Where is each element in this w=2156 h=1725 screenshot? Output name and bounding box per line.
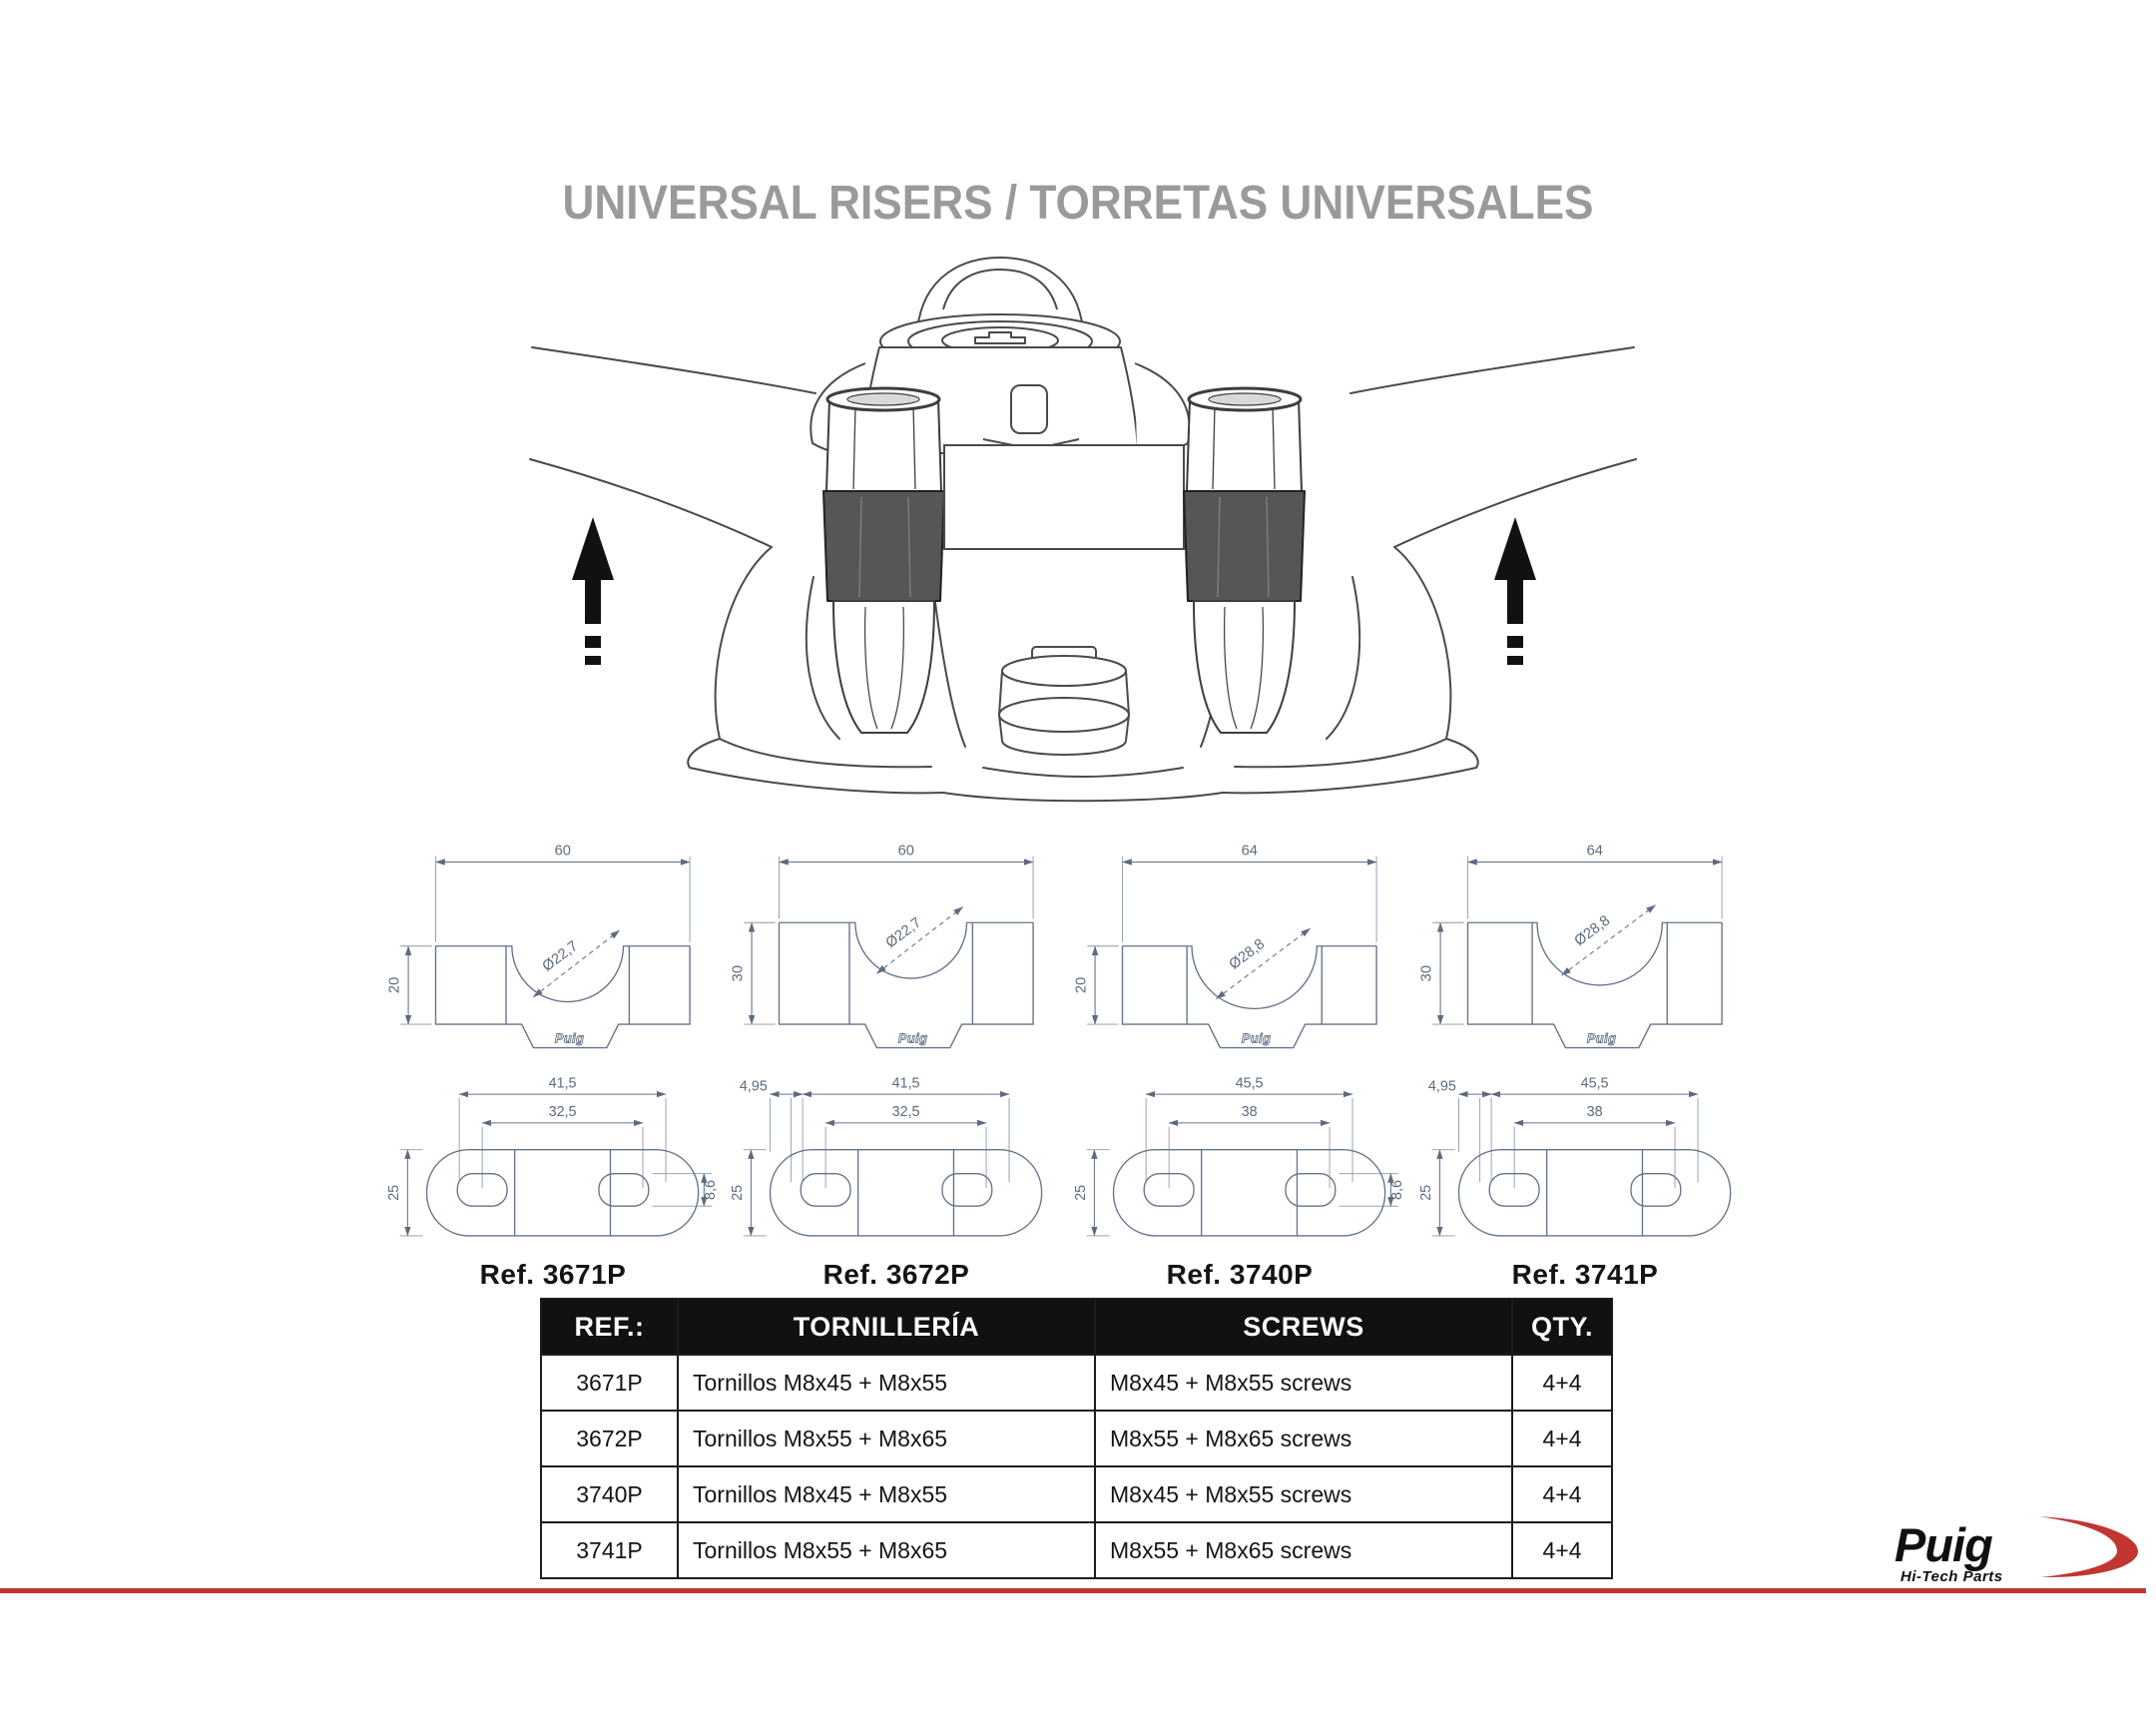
dim-inner-span: 32,5 xyxy=(549,1104,577,1120)
dim-top-width: 60 xyxy=(898,844,914,860)
drawing-set-3740p: 64 20 Ø28,8 Puig 45,5 38 25 xyxy=(1064,841,1415,1300)
dim-height: 20 xyxy=(1073,977,1089,993)
table-header-row: REF.: TORNILLERÍA SCREWS QTY. xyxy=(541,1299,1612,1355)
dim-height: 30 xyxy=(730,965,746,981)
dim-top-width: 64 xyxy=(1587,844,1603,860)
up-arrow-icon xyxy=(572,517,614,665)
dim-inner-span: 38 xyxy=(1587,1104,1603,1120)
ref-label: Ref. 3672P xyxy=(721,1259,1072,1291)
dim-outer-span: 41,5 xyxy=(892,1075,920,1091)
header-qty: QTY. xyxy=(1512,1299,1612,1355)
logo-brand-text: Puig xyxy=(1894,1518,1992,1571)
top-view-3740p: 45,5 38 25 8,6 xyxy=(1070,1075,1409,1257)
drawing-set-3672p: 60 30 Ø22,7 Puig 4,95 41,5 32,5 xyxy=(721,841,1072,1300)
puig-logo: Puig Hi-Tech Parts xyxy=(1888,1513,2144,1589)
dim-top-width: 64 xyxy=(1242,844,1258,860)
header-ref: REF.: xyxy=(541,1299,678,1355)
dim-height: 30 xyxy=(1418,965,1434,981)
dim-inner-span: 32,5 xyxy=(892,1104,920,1120)
header-tornilleria: TORNILLERÍA xyxy=(678,1299,1095,1355)
dim-edge-offset: 4,95 xyxy=(1428,1078,1456,1094)
cell-screws: M8x55 + M8x65 screws xyxy=(1095,1522,1512,1578)
dim-height: 20 xyxy=(386,977,402,993)
cell-screws: M8x55 + M8x65 screws xyxy=(1095,1411,1512,1466)
dim-plate-depth: 25 xyxy=(386,1185,402,1201)
cell-ref: 3672P xyxy=(541,1411,678,1466)
dim-plate-depth: 25 xyxy=(1073,1185,1089,1201)
cell-tornilleria: Tornillos M8x45 + M8x55 xyxy=(678,1355,1095,1411)
dim-edge-offset: 4,95 xyxy=(740,1078,768,1094)
dim-diameter: Ø22,7 xyxy=(540,938,582,975)
logo-swoosh xyxy=(2038,1516,2138,1577)
cell-tornilleria: Tornillos M8x45 + M8x55 xyxy=(678,1466,1095,1522)
left-riser xyxy=(823,388,944,733)
table-row: 3671P Tornillos M8x45 + M8x55 M8x45 + M8… xyxy=(541,1355,1612,1411)
up-arrow-icon xyxy=(1494,517,1536,665)
dim-plate-depth: 25 xyxy=(730,1185,746,1201)
footer-red-rule xyxy=(0,1588,2146,1593)
dim-diameter: Ø28,8 xyxy=(1572,912,1614,949)
dim-slot-width: 8,6 xyxy=(1389,1180,1405,1200)
dim-outer-span: 41,5 xyxy=(549,1075,577,1091)
side-view-3672p: 60 30 Ø22,7 Puig xyxy=(727,841,1066,1075)
ref-label: Ref. 3740P xyxy=(1064,1259,1415,1291)
cell-qty: 4+4 xyxy=(1512,1466,1612,1522)
cell-tornilleria: Tornillos M8x55 + M8x65 xyxy=(678,1522,1095,1578)
cell-qty: 4+4 xyxy=(1512,1522,1612,1578)
side-view-3740p: 64 20 Ø28,8 Puig xyxy=(1070,841,1409,1075)
page-title: UNIVERSAL RISERS / TORRETAS UNIVERSALES xyxy=(86,176,2069,231)
dim-outer-span: 45,5 xyxy=(1236,1075,1264,1091)
dim-inner-span: 38 xyxy=(1242,1104,1258,1120)
cell-ref: 3671P xyxy=(541,1355,678,1411)
dim-diameter: Ø28,8 xyxy=(1227,936,1269,973)
brand-stamp: Puig xyxy=(1242,1031,1272,1046)
screws-spec-table: REF.: TORNILLERÍA SCREWS QTY. 3671P Torn… xyxy=(540,1298,1613,1579)
drawing-set-3741p: 64 30 Ø28,8 Puig 4,95 45,5 38 xyxy=(1409,841,1761,1300)
cell-screws: M8x45 + M8x55 screws xyxy=(1095,1466,1512,1522)
cell-ref: 3740P xyxy=(541,1466,678,1522)
steering-nut xyxy=(999,647,1129,755)
table-row: 3741P Tornillos M8x55 + M8x65 M8x55 + M8… xyxy=(541,1522,1612,1578)
bar-clamp-plate xyxy=(944,445,1184,549)
top-view-3741p: 4,95 45,5 38 25 xyxy=(1415,1075,1755,1257)
table-row: 3740P Tornillos M8x45 + M8x55 M8x45 + M8… xyxy=(541,1466,1612,1522)
catalog-page: UNIVERSAL RISERS / TORRETAS UNIVERSALES xyxy=(0,0,2156,1725)
brand-stamp: Puig xyxy=(898,1031,928,1046)
cell-qty: 4+4 xyxy=(1512,1411,1612,1466)
cell-ref: 3741P xyxy=(541,1522,678,1578)
ref-label: Ref. 3671P xyxy=(377,1259,729,1291)
dim-top-width: 60 xyxy=(555,844,571,860)
cell-screws: M8x45 + M8x55 screws xyxy=(1095,1355,1512,1411)
dim-slot-width: 8,6 xyxy=(703,1180,719,1200)
right-riser xyxy=(1184,388,1305,733)
installation-illustration xyxy=(514,248,1652,813)
cell-qty: 4+4 xyxy=(1512,1355,1612,1411)
cell-tornilleria: Tornillos M8x55 + M8x65 xyxy=(678,1411,1095,1466)
brand-stamp: Puig xyxy=(1587,1031,1617,1046)
dim-outer-span: 45,5 xyxy=(1581,1075,1609,1091)
ref-label: Ref. 3741P xyxy=(1409,1259,1761,1291)
drawing-set-3671p: 60 20 Ø22,7 Puig 41,5 32,5 25 xyxy=(377,841,729,1300)
header-screws: SCREWS xyxy=(1095,1299,1512,1355)
side-view-3671p: 60 20 Ø22,7 Puig xyxy=(383,841,723,1075)
top-view-3671p: 41,5 32,5 25 8,6 xyxy=(383,1075,723,1257)
brand-stamp: Puig xyxy=(555,1031,585,1046)
dim-diameter: Ø22,7 xyxy=(883,914,925,951)
top-view-3672p: 4,95 41,5 32,5 25 xyxy=(727,1075,1066,1257)
table-row: 3672P Tornillos M8x55 + M8x65 M8x55 + M8… xyxy=(541,1411,1612,1466)
dim-plate-depth: 25 xyxy=(1418,1185,1434,1201)
side-view-3741p: 64 30 Ø28,8 Puig xyxy=(1415,841,1755,1075)
logo-tagline: Hi-Tech Parts xyxy=(1900,1568,2003,1585)
